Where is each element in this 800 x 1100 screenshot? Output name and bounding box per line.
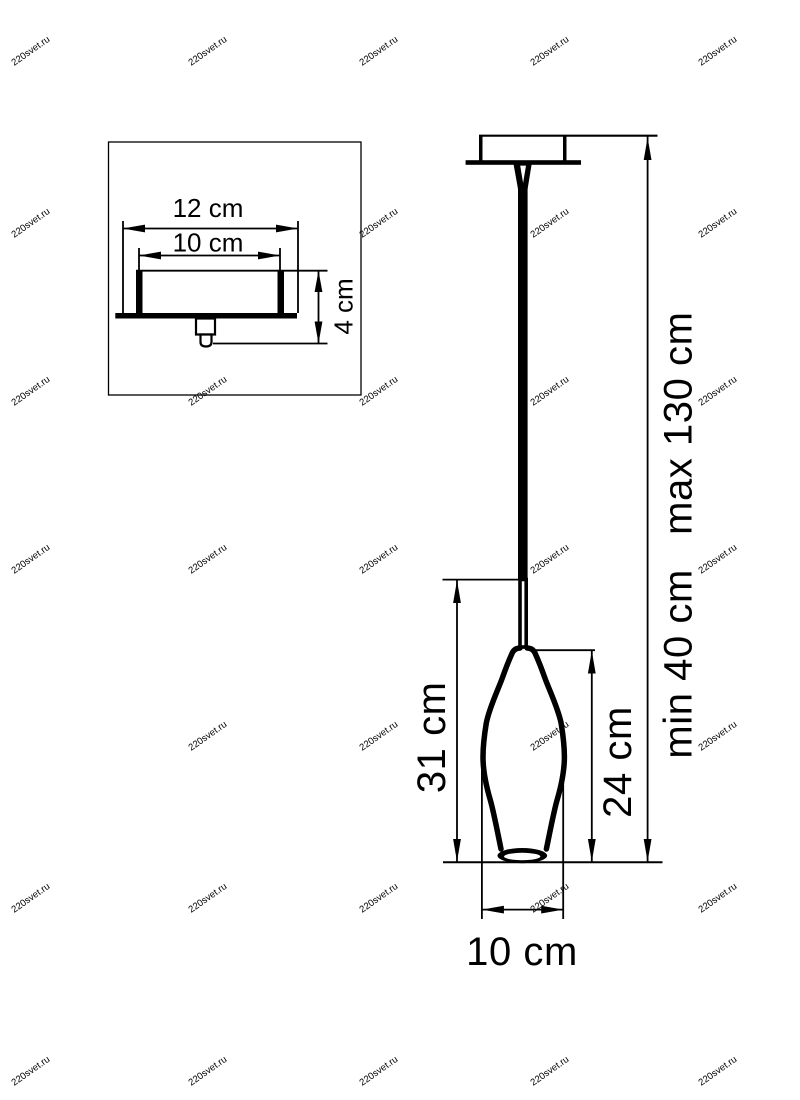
- svg-text:24 cm: 24 cm: [596, 706, 640, 818]
- svg-text:10 cm: 10 cm: [173, 228, 244, 258]
- svg-text:12 cm: 12 cm: [173, 193, 244, 223]
- svg-text:min 40 cm: min 40 cm: [657, 569, 701, 758]
- svg-text:max 130 cm: max 130 cm: [657, 312, 701, 535]
- svg-text:4 cm: 4 cm: [329, 278, 359, 334]
- svg-text:10 cm: 10 cm: [466, 930, 578, 974]
- svg-text:31 cm: 31 cm: [410, 681, 454, 793]
